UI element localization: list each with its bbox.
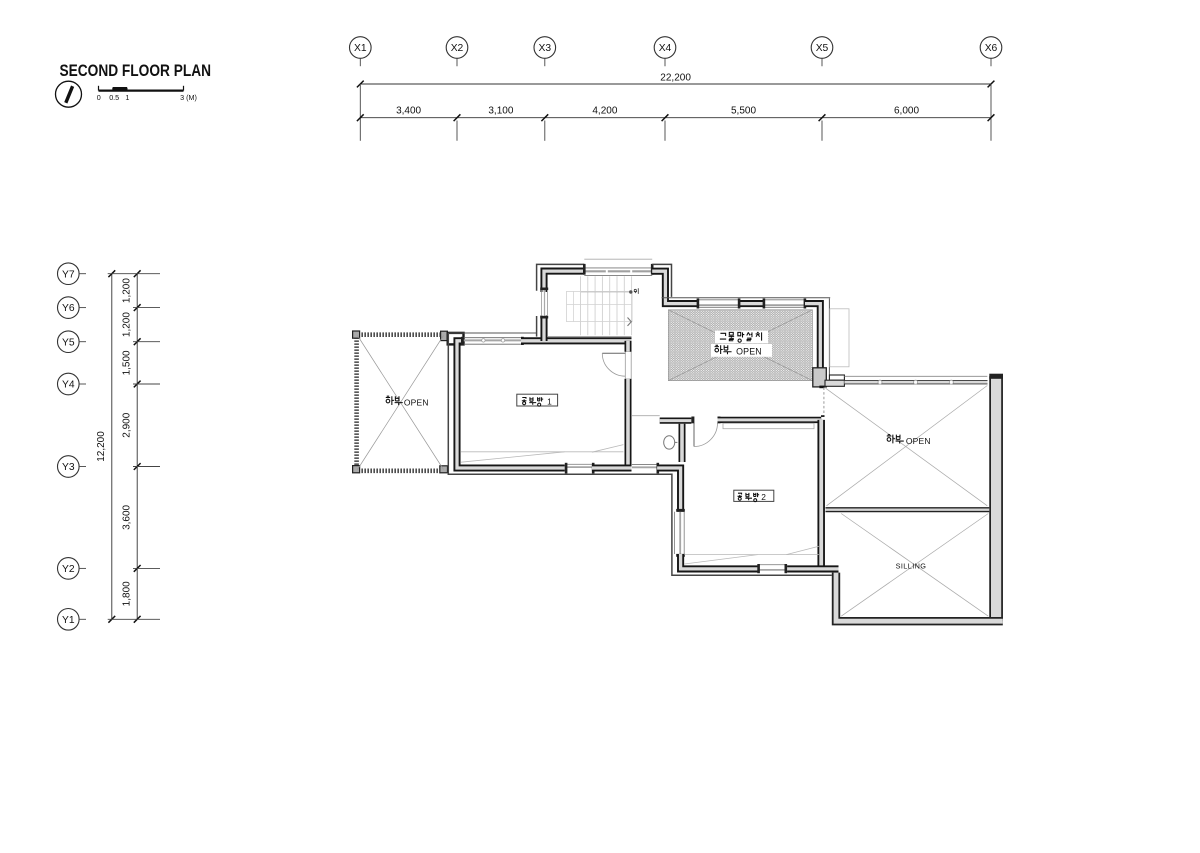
svg-text:2,900: 2,900 [121, 412, 132, 437]
svg-text:1,800: 1,800 [121, 581, 132, 606]
svg-text:0: 0 [97, 93, 101, 102]
svg-text:OPEN: OPEN [404, 397, 429, 407]
svg-text:OPEN: OPEN [736, 347, 762, 357]
svg-text:SILLING: SILLING [896, 562, 927, 571]
svg-text:1,200: 1,200 [121, 278, 132, 303]
svg-text:Y4: Y4 [62, 380, 75, 391]
svg-text:4,200: 4,200 [592, 106, 617, 117]
svg-text:3,400: 3,400 [396, 106, 421, 117]
svg-text:3 (M): 3 (M) [180, 93, 197, 102]
svg-text:2: 2 [761, 492, 766, 502]
svg-text:1: 1 [547, 397, 552, 407]
svg-text:6,000: 6,000 [894, 106, 919, 117]
svg-text:Y7: Y7 [62, 269, 75, 280]
svg-text:12,200: 12,200 [96, 431, 107, 462]
svg-text:1: 1 [125, 93, 129, 102]
svg-text:X2: X2 [451, 43, 464, 54]
svg-text:Y3: Y3 [62, 462, 75, 473]
svg-text:3,100: 3,100 [488, 106, 513, 117]
svg-text:22,200: 22,200 [660, 73, 691, 84]
svg-text:Y1: Y1 [62, 615, 75, 626]
svg-text:Y2: Y2 [62, 564, 75, 575]
svg-text:5,500: 5,500 [731, 106, 756, 117]
svg-text:Y5: Y5 [62, 337, 75, 348]
svg-text:0.5: 0.5 [109, 93, 119, 102]
svg-text:1,200: 1,200 [121, 312, 132, 337]
svg-text:3,600: 3,600 [121, 504, 132, 529]
svg-text:X4: X4 [659, 43, 672, 54]
svg-text:1,500: 1,500 [121, 350, 132, 375]
svg-text:X5: X5 [816, 43, 829, 54]
svg-text:SECOND FLOOR PLAN: SECOND FLOOR PLAN [60, 62, 212, 80]
svg-text:Y6: Y6 [62, 303, 75, 314]
svg-text:OPEN: OPEN [906, 436, 931, 446]
svg-text:X3: X3 [538, 43, 551, 54]
svg-text:X1: X1 [354, 43, 367, 54]
svg-text:X6: X6 [985, 43, 998, 54]
